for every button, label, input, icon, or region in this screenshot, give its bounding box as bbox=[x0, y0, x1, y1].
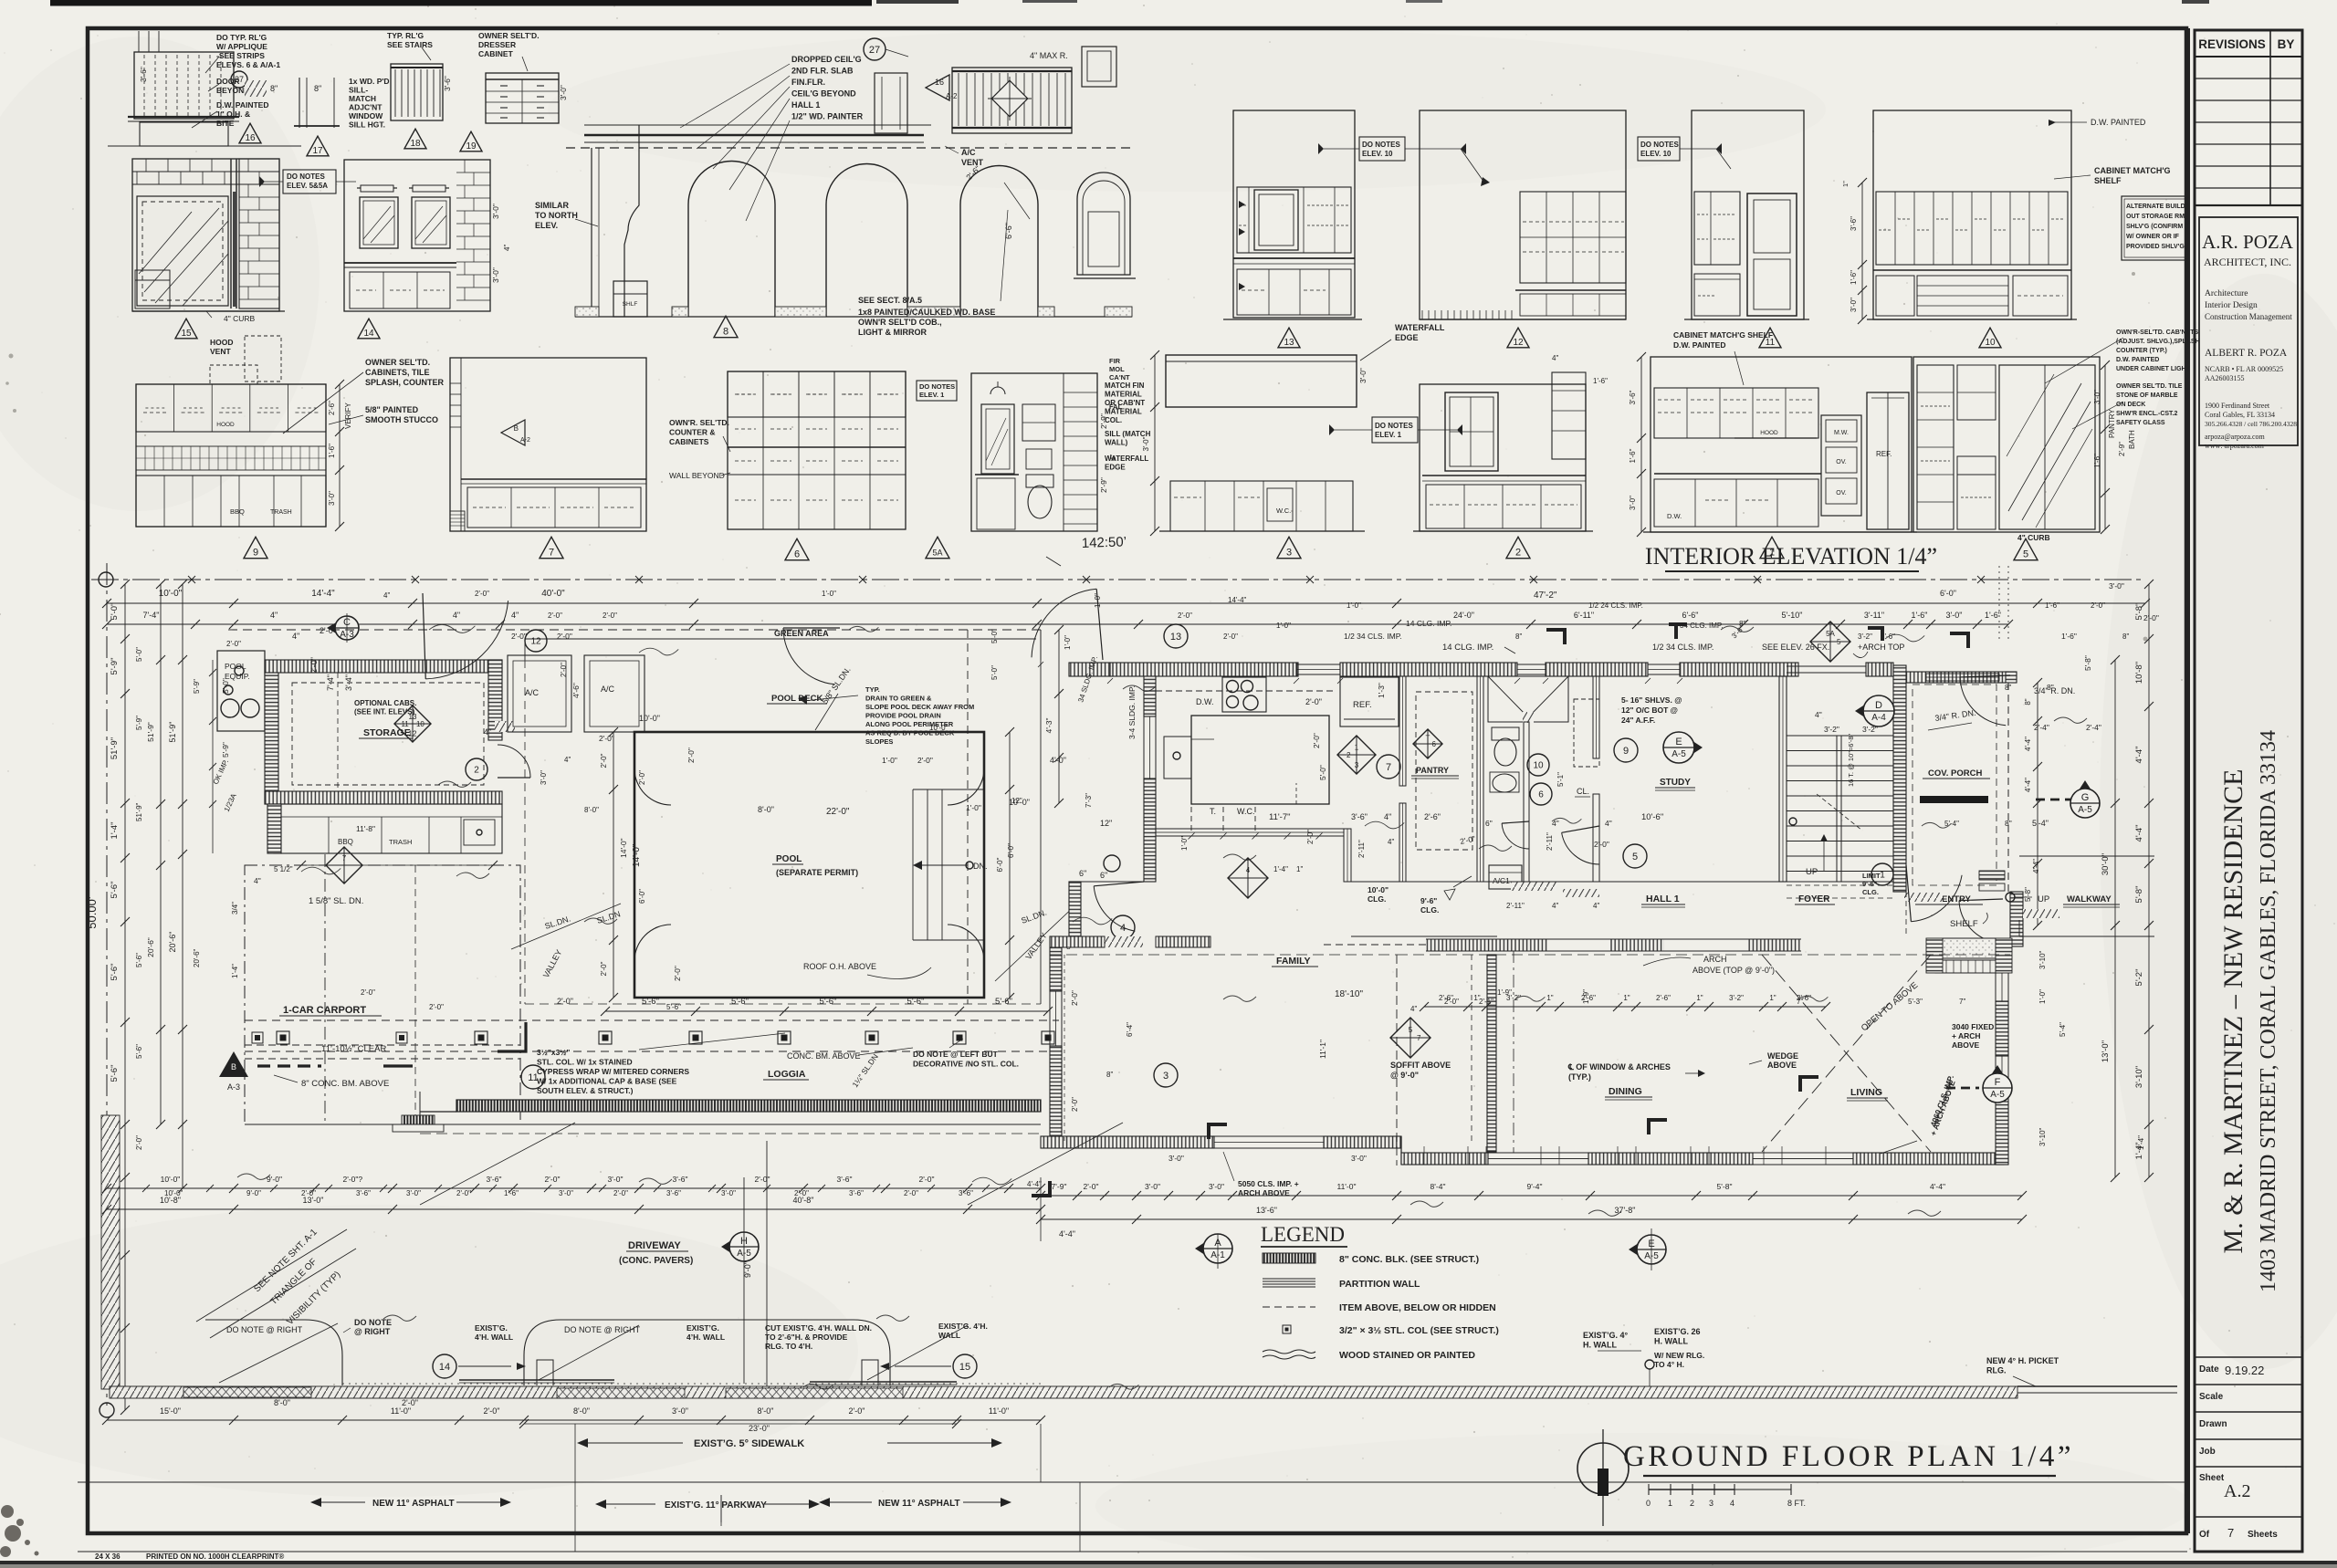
svg-text:2'-0": 2'-0" bbox=[1594, 840, 1609, 849]
svg-text:W/ OWNER OR IF: W/ OWNER OR IF bbox=[2126, 234, 2180, 240]
svg-text:COUNTER (TYP.): COUNTER (TYP.) bbox=[2116, 348, 2167, 354]
svg-text:1": 1" bbox=[1696, 994, 1703, 1002]
svg-text:10: 10 bbox=[1985, 338, 1996, 348]
svg-text:1'-6": 1'-6" bbox=[2045, 601, 2059, 610]
svg-text:SHELF: SHELF bbox=[2094, 176, 2122, 185]
svg-text:A-5: A-5 bbox=[1990, 1090, 2005, 1100]
svg-text:2'-0": 2'-0" bbox=[1178, 612, 1192, 620]
svg-text:2'-9": 2'-9" bbox=[1099, 477, 1108, 493]
svg-text:Job: Job bbox=[2199, 1447, 2216, 1457]
svg-text:5'-6": 5'-6" bbox=[110, 882, 120, 899]
svg-text:5'-6": 5'-6" bbox=[642, 997, 659, 1007]
svg-text:3'-2": 3'-2" bbox=[1824, 725, 1839, 734]
svg-text:MATERIAL: MATERIAL bbox=[1105, 391, 1142, 399]
svg-text:3-4 SLDG. IMP.: 3-4 SLDG. IMP. bbox=[1127, 685, 1137, 739]
svg-text:TRASH: TRASH bbox=[270, 509, 292, 516]
svg-text:1'-0": 1'-0" bbox=[1064, 635, 1072, 650]
svg-text:2'-0": 2'-0" bbox=[545, 1175, 561, 1184]
svg-text:3: 3 bbox=[1286, 548, 1292, 559]
svg-text:Sheets: Sheets bbox=[2248, 1530, 2278, 1540]
svg-text:INTERIOR ELEVATION 1/4”: INTERIOR ELEVATION 1/4” bbox=[1645, 543, 1937, 570]
svg-text:D.W.: D.W. bbox=[1196, 697, 1214, 706]
svg-text:1/2 34 CLS. IMP.: 1/2 34 CLS. IMP. bbox=[1652, 643, 1713, 652]
svg-text:GREEN AREA: GREEN AREA bbox=[774, 629, 829, 638]
svg-text:3/2" × 3½ STL. COL (SEE STRUCT: 3/2" × 3½ STL. COL (SEE STRUCT.) bbox=[1339, 1325, 1499, 1336]
svg-text:3'-0": 3'-0" bbox=[491, 267, 500, 283]
svg-text:OWN'R. SEL'TD.: OWN'R. SEL'TD. bbox=[669, 418, 729, 427]
svg-text:5'-0": 5'-0" bbox=[110, 603, 120, 621]
svg-text:2'-0": 2'-0" bbox=[1084, 1182, 1099, 1191]
svg-text:FAL: FAL bbox=[1109, 402, 1123, 411]
svg-text:8": 8" bbox=[2005, 819, 2012, 828]
svg-text:6'-4": 6'-4" bbox=[1126, 1022, 1134, 1037]
svg-text:2'-0": 2'-0" bbox=[2091, 601, 2105, 610]
svg-text:OWNER SELT'D.: OWNER SELT'D. bbox=[478, 31, 540, 40]
svg-text:1'-0": 1'-0" bbox=[1180, 836, 1189, 851]
svg-text:EDGE: EDGE bbox=[1105, 464, 1126, 472]
svg-text:OWNER SEL'TD.: OWNER SEL'TD. bbox=[365, 358, 430, 367]
svg-text:Drawn: Drawn bbox=[2199, 1419, 2227, 1429]
svg-text:3'-6": 3'-6" bbox=[487, 1175, 502, 1184]
svg-text:CLG.: CLG. bbox=[1420, 905, 1439, 915]
svg-text:WATERFALL: WATERFALL bbox=[1105, 455, 1148, 463]
svg-text:ALTERNATE BUILD-: ALTERNATE BUILD- bbox=[2126, 204, 2188, 210]
svg-text:3'-6": 3'-6" bbox=[959, 1189, 973, 1197]
svg-text:CABINET: CABINET bbox=[478, 49, 514, 58]
svg-text:A-2: A-2 bbox=[520, 437, 530, 444]
svg-text:20'-6": 20'-6" bbox=[168, 932, 177, 953]
svg-text:5'-4": 5'-4" bbox=[2059, 1022, 2067, 1037]
svg-text:5- 16" SHLVS. @: 5- 16" SHLVS. @ bbox=[1621, 695, 1682, 705]
svg-text:5'-8": 5'-8" bbox=[2083, 655, 2092, 671]
svg-text:9'-0": 9'-0" bbox=[246, 1189, 261, 1197]
svg-text:REF.: REF. bbox=[1876, 450, 1892, 458]
svg-text:8": 8" bbox=[270, 84, 278, 93]
svg-text:8'-0": 8'-0" bbox=[758, 805, 774, 814]
svg-text:4": 4" bbox=[1410, 1005, 1417, 1013]
svg-text:CABINET MATCH'G: CABINET MATCH'G bbox=[2094, 166, 2170, 175]
svg-text:ITEM ABOVE, BELOW OR HIDDEN: ITEM ABOVE, BELOW OR HIDDEN bbox=[1339, 1302, 1496, 1313]
svg-text:1'-6": 1'-6" bbox=[2093, 454, 2101, 468]
svg-text:3'-2": 3'-2" bbox=[1729, 994, 1744, 1002]
svg-text:2'-1": 2'-1" bbox=[1479, 998, 1493, 1006]
svg-text:2'-0": 2'-0" bbox=[1306, 830, 1315, 844]
svg-text:1'-4": 1'-4" bbox=[1273, 865, 1288, 873]
svg-text:4'-6": 4'-6" bbox=[571, 683, 581, 698]
svg-text:UP: UP bbox=[2038, 894, 2049, 904]
svg-text:T.: T. bbox=[1210, 807, 1216, 816]
svg-text:5'-3": 5'-3" bbox=[1908, 998, 1923, 1006]
svg-text:12" O/C BOT @: 12" O/C BOT @ bbox=[1621, 706, 1678, 715]
svg-text:FOYER: FOYER bbox=[1798, 894, 1830, 904]
svg-text:CABINETS, TILE: CABINETS, TILE bbox=[365, 368, 430, 377]
svg-text:NEW 11° ASPHALT: NEW 11° ASPHALT bbox=[878, 1499, 960, 1509]
svg-text:1'-9": 1'-9" bbox=[1497, 988, 1512, 997]
svg-text:EXIST’G. 4’H.: EXIST’G. 4’H. bbox=[938, 1322, 988, 1331]
svg-text:50.00’: 50.00’ bbox=[85, 896, 99, 929]
svg-text:2'-6": 2'-6" bbox=[328, 401, 336, 415]
svg-text:10'-6": 10'-6" bbox=[1641, 812, 1663, 822]
svg-text:12: 12 bbox=[409, 729, 417, 737]
svg-text:A-3: A-3 bbox=[227, 1082, 240, 1092]
svg-text:2'-0": 2'-0" bbox=[511, 632, 527, 641]
svg-text:F: F bbox=[1995, 1077, 2001, 1088]
svg-text:5'-9": 5'-9" bbox=[221, 742, 230, 758]
svg-text:5: 5 bbox=[1837, 638, 1841, 646]
svg-text:LOGGIA: LOGGIA bbox=[768, 1069, 806, 1080]
svg-text:5A: 5A bbox=[1826, 630, 1835, 638]
svg-text:WALL: WALL bbox=[938, 1331, 960, 1340]
svg-text:11: 11 bbox=[528, 1072, 538, 1083]
svg-text:EXIST’G. 4°: EXIST’G. 4° bbox=[1583, 1331, 1629, 1340]
svg-text:3'-0": 3'-0" bbox=[1358, 368, 1368, 383]
svg-text:ABOVE: ABOVE bbox=[1952, 1040, 1980, 1050]
svg-text:22'-0": 22'-0" bbox=[826, 807, 850, 817]
svg-text:2'-11": 2'-11" bbox=[1546, 832, 1554, 851]
svg-text:5'-6": 5'-6" bbox=[820, 997, 837, 1007]
svg-text:8": 8" bbox=[1106, 1071, 1113, 1079]
svg-text:SILL HGT.: SILL HGT. bbox=[349, 120, 385, 130]
svg-text:TO NORTH: TO NORTH bbox=[535, 211, 578, 220]
svg-text:4: 4 bbox=[1246, 866, 1251, 874]
svg-text:7: 7 bbox=[2227, 1526, 2234, 1540]
svg-text:13'-6": 13'-6" bbox=[1256, 1206, 1277, 1215]
svg-text:ABOVE (TOP @ 9’-0"): ABOVE (TOP @ 9’-0") bbox=[1692, 966, 1775, 975]
svg-text:Of: Of bbox=[2199, 1530, 2210, 1540]
svg-text:5'-0": 5'-0" bbox=[990, 665, 999, 680]
svg-text:OV.: OV. bbox=[1836, 459, 1846, 465]
svg-text:3'-6": 3'-6" bbox=[849, 1189, 864, 1197]
svg-text:7'-4": 7'-4" bbox=[143, 611, 160, 620]
svg-text:15: 15 bbox=[959, 1362, 970, 1373]
svg-text:2'-0": 2'-0" bbox=[755, 1175, 770, 1184]
svg-text:14'-0": 14'-0" bbox=[632, 843, 642, 867]
svg-text:1'-4": 1'-4" bbox=[110, 822, 120, 840]
svg-text:4'-4": 4'-4" bbox=[1059, 1229, 1075, 1239]
svg-text:6'-0": 6'-0" bbox=[996, 857, 1004, 872]
svg-text:3'-6": 3'-6" bbox=[666, 1189, 681, 1197]
svg-text:8'-4": 8'-4" bbox=[1430, 1182, 1446, 1191]
svg-text:W/ APPLIQUE: W/ APPLIQUE bbox=[216, 42, 267, 51]
svg-text:DECORATIVE /NO STL. COL.: DECORATIVE /NO STL. COL. bbox=[913, 1060, 1019, 1069]
svg-text:NEW 4° H. PICKET: NEW 4° H. PICKET bbox=[1986, 1356, 2059, 1365]
svg-text:5'-1": 5'-1" bbox=[1556, 772, 1565, 787]
svg-text:1'-9": 1'-9" bbox=[1582, 989, 1590, 1004]
svg-text:MATCH FIN: MATCH FIN bbox=[1105, 382, 1145, 390]
svg-text:A-5: A-5 bbox=[1672, 749, 1686, 759]
svg-text:3'-0": 3'-0" bbox=[1946, 611, 1963, 620]
svg-text:11’-10½" CLEAR: 11’-10½" CLEAR bbox=[321, 1044, 386, 1054]
svg-text:3'-0": 3'-0" bbox=[491, 204, 500, 219]
svg-text:4": 4" bbox=[1815, 710, 1822, 719]
svg-text:SPLASH, COUNTER: SPLASH, COUNTER bbox=[365, 378, 445, 387]
svg-text:4": 4" bbox=[484, 727, 491, 737]
svg-text:REVISIONS: REVISIONS bbox=[2198, 37, 2266, 51]
svg-text:Scale: Scale bbox=[2199, 1392, 2224, 1402]
svg-text:1": 1" bbox=[1769, 994, 1776, 1002]
svg-text:CL.: CL. bbox=[1577, 787, 1589, 796]
svg-text:WALL BEYOND: WALL BEYOND bbox=[669, 471, 725, 480]
svg-text:11'-0": 11'-0" bbox=[1336, 1182, 1356, 1191]
svg-text:2'-0": 2'-0" bbox=[603, 612, 617, 620]
svg-text:SMOOTH STUCCO: SMOOTH STUCCO bbox=[365, 415, 438, 424]
svg-text:1'-0": 1'-0" bbox=[1094, 593, 1102, 608]
svg-text:REF.: REF. bbox=[1353, 700, 1372, 710]
svg-text:7: 7 bbox=[342, 854, 347, 862]
svg-text:8": 8" bbox=[2005, 684, 2011, 692]
svg-text:@ 9’-0": @ 9’-0" bbox=[1390, 1071, 1419, 1080]
svg-text:2'-0": 2'-0" bbox=[301, 1189, 316, 1197]
svg-text:11'-8": 11'-8" bbox=[356, 824, 375, 833]
svg-text:11'-1": 11'-1" bbox=[1318, 1040, 1327, 1059]
svg-text:WOOD STAINED OR PAINTED: WOOD STAINED OR PAINTED bbox=[1339, 1350, 1475, 1361]
svg-text:3'-0": 3'-0" bbox=[1142, 436, 1150, 451]
svg-text:8": 8" bbox=[314, 84, 321, 93]
svg-text:CONC. BM. ABOVE: CONC. BM. ABOVE bbox=[787, 1051, 861, 1061]
svg-text:WINDOW: WINDOW bbox=[349, 111, 383, 120]
svg-text:2: 2 bbox=[474, 766, 479, 776]
svg-text:6: 6 bbox=[794, 549, 800, 560]
svg-text:COL.: COL. bbox=[1105, 416, 1122, 424]
svg-text:POOL DECK: POOL DECK bbox=[771, 694, 823, 704]
svg-text:BBQ: BBQ bbox=[230, 507, 245, 516]
svg-text:COV. PORCH: COV. PORCH bbox=[1928, 768, 1982, 779]
svg-text:6": 6" bbox=[1485, 819, 1493, 828]
svg-text:1'-6": 1'-6" bbox=[504, 1189, 519, 1197]
svg-text:142:50’: 142:50’ bbox=[1082, 534, 1127, 551]
svg-text:2'-6": 2'-6" bbox=[1424, 812, 1441, 821]
svg-text:2'-4": 2'-4" bbox=[2034, 723, 2049, 732]
svg-text:1'-0": 1'-0" bbox=[1347, 601, 1361, 610]
svg-text:TYP.: TYP. bbox=[865, 685, 880, 694]
svg-text:D.W. PAINTED: D.W. PAINTED bbox=[1673, 340, 1725, 350]
svg-text:W.C.: W.C. bbox=[1276, 507, 1291, 515]
svg-text:13: 13 bbox=[1284, 338, 1294, 348]
svg-text:Sheet: Sheet bbox=[2199, 1473, 2225, 1483]
svg-text:10'-0": 10'-0" bbox=[164, 1189, 183, 1197]
svg-text:1'-6": 1'-6" bbox=[2061, 632, 2077, 641]
svg-text:4'-3": 4'-3" bbox=[1044, 718, 1053, 734]
svg-text:2'-0": 2'-0" bbox=[1071, 1097, 1079, 1112]
svg-text:SILL-: SILL- bbox=[349, 86, 368, 95]
svg-text:3040 FIXED: 3040 FIXED bbox=[1952, 1022, 1994, 1031]
svg-text:12: 12 bbox=[1513, 338, 1524, 348]
svg-text:3/4": 3/4" bbox=[231, 902, 239, 915]
svg-text:18: 18 bbox=[410, 139, 421, 149]
svg-text:ELEV.: ELEV. bbox=[535, 221, 558, 230]
svg-text:24'-0": 24'-0" bbox=[1453, 611, 1474, 620]
svg-text:10'-0": 10'-0" bbox=[1368, 885, 1389, 894]
svg-text:FIR: FIR bbox=[1109, 357, 1121, 365]
svg-text:3'-11": 3'-11" bbox=[1864, 611, 1884, 620]
svg-text:3: 3 bbox=[1355, 761, 1359, 769]
svg-text:NEW 11° ASPHALT: NEW 11° ASPHALT bbox=[372, 1499, 455, 1509]
svg-text:6'-0": 6'-0" bbox=[1007, 843, 1015, 858]
svg-text:2'-0": 2'-0" bbox=[135, 1135, 143, 1150]
svg-text:W/ 1x ADDITIONAL CAP & BASE (S: W/ 1x ADDITIONAL CAP & BASE (SEE bbox=[537, 1077, 677, 1086]
svg-text:BBQ: BBQ bbox=[338, 838, 353, 846]
svg-text:3'-10": 3'-10" bbox=[2038, 950, 2047, 969]
svg-text:LIGHT & MIRROR: LIGHT & MIRROR bbox=[858, 328, 927, 337]
svg-text:4'-4": 4'-4" bbox=[1930, 1182, 1945, 1191]
svg-text:3'-0": 3'-0" bbox=[1850, 298, 1858, 312]
svg-text:5'-6": 5'-6" bbox=[731, 997, 749, 1007]
svg-text:+ ARCH: + ARCH bbox=[1952, 1031, 1981, 1040]
svg-text:3'-0": 3'-0" bbox=[1168, 1154, 1184, 1163]
svg-text:4": 4" bbox=[564, 756, 571, 764]
svg-text:DO TYP. RL'G: DO TYP. RL'G bbox=[216, 33, 267, 42]
svg-text:2'-0": 2'-0" bbox=[686, 747, 696, 763]
svg-text:40'-0": 40'-0" bbox=[541, 589, 565, 599]
svg-text:2'-0": 2'-0" bbox=[1312, 733, 1321, 748]
svg-text:A.2: A.2 bbox=[2224, 1481, 2250, 1501]
svg-text:TRASH: TRASH bbox=[389, 838, 412, 846]
svg-text:2'-0": 2'-0" bbox=[919, 1175, 935, 1184]
svg-text:9: 9 bbox=[1623, 746, 1629, 757]
svg-text:2'-0": 2'-0" bbox=[361, 988, 375, 997]
svg-text:10'-0": 10'-0" bbox=[929, 724, 948, 732]
svg-text:2'-0": 2'-0" bbox=[849, 1406, 865, 1416]
svg-text:5050 CLS. IMP. +: 5050 CLS. IMP. + bbox=[1238, 1179, 1299, 1188]
svg-text:4'-4": 4'-4" bbox=[2024, 737, 2032, 751]
svg-text:CA'NT: CA'NT bbox=[1109, 373, 1130, 382]
svg-text:4": 4" bbox=[503, 245, 511, 251]
svg-text:11'-0": 11'-0" bbox=[989, 1406, 1009, 1416]
svg-text:2'-0": 2'-0" bbox=[600, 961, 608, 976]
svg-text:℄ OF WINDOW & ARCHES: ℄ OF WINDOW & ARCHES bbox=[1567, 1062, 1671, 1071]
svg-text:B: B bbox=[514, 424, 519, 433]
svg-text:1 5/8" SL. DN.: 1 5/8" SL. DN. bbox=[309, 896, 363, 906]
svg-text:EXIST’G. 11° PARKWAY: EXIST’G. 11° PARKWAY bbox=[665, 1500, 767, 1511]
svg-text:W.C.: W.C. bbox=[1237, 807, 1255, 816]
svg-text:4": 4" bbox=[1552, 354, 1558, 362]
svg-text:(SEPARATE PERMIT): (SEPARATE PERMIT) bbox=[776, 868, 858, 877]
svg-text:16 T. @ 10"=6'-8": 16 T. @ 10"=6'-8" bbox=[1847, 733, 1855, 787]
svg-text:2'-4": 2'-4" bbox=[2086, 723, 2101, 732]
svg-text:3'-0": 3'-0" bbox=[721, 1189, 736, 1197]
svg-text:3'-0": 3'-0" bbox=[1209, 1182, 1224, 1191]
svg-text:H. WALL: H. WALL bbox=[1583, 1341, 1617, 1350]
svg-text:DRAIN TO GREEN &: DRAIN TO GREEN & bbox=[865, 695, 932, 703]
svg-text:T: T bbox=[1426, 735, 1430, 743]
svg-text:1": 1" bbox=[1296, 865, 1303, 873]
svg-text:5'-6": 5'-6" bbox=[135, 1044, 143, 1059]
svg-text:1: 1 bbox=[1880, 871, 1885, 881]
svg-text:WALL): WALL) bbox=[1105, 439, 1128, 447]
svg-text:D: D bbox=[1875, 700, 1882, 711]
svg-text:WATERFALL: WATERFALL bbox=[1395, 323, 1445, 332]
svg-text:DO NOTES: DO NOTES bbox=[1375, 422, 1413, 430]
svg-text:5'-8": 5'-8" bbox=[2024, 887, 2032, 902]
svg-text:D.W. PAINTED: D.W. PAINTED bbox=[2091, 118, 2146, 127]
svg-text:OWN'R SELT'D COB.,: OWN'R SELT'D COB., bbox=[858, 318, 942, 327]
svg-text:HOOD: HOOD bbox=[1760, 430, 1778, 436]
svg-text:3/4" R. DN.: 3/4" R. DN. bbox=[2034, 686, 2075, 695]
svg-text:SHLV'G (CONFIRM: SHLV'G (CONFIRM bbox=[2126, 224, 2183, 230]
svg-text:1'-4": 1'-4" bbox=[231, 964, 239, 978]
svg-text:10: 10 bbox=[416, 720, 424, 728]
svg-text:8'-0": 8'-0" bbox=[584, 806, 599, 814]
svg-text:TYP. RL'G: TYP. RL'G bbox=[387, 31, 424, 40]
svg-text:+ARCH TOP: +ARCH TOP bbox=[1858, 643, 1904, 652]
svg-text:4": 4" bbox=[1552, 902, 1558, 910]
svg-text:3'-2": 3'-2" bbox=[1858, 632, 1872, 641]
svg-text:SOUTH ELEV. & STRUCT.): SOUTH ELEV. & STRUCT.) bbox=[537, 1086, 634, 1095]
svg-text:5'-0": 5'-0" bbox=[1318, 765, 1327, 780]
svg-text:2'-0": 2'-0" bbox=[904, 1189, 918, 1197]
svg-text:SLOPE POOL DECK AWAY FROM: SLOPE POOL DECK AWAY FROM bbox=[865, 703, 974, 711]
svg-text:6'-11": 6'-11" bbox=[1574, 611, 1594, 620]
svg-text:5'-6": 5'-6" bbox=[135, 953, 143, 967]
svg-text:PROVIDED SHLV'G.): PROVIDED SHLV'G.) bbox=[2126, 244, 2188, 250]
svg-text:OWN'R-SEL'TD. CAB'NETS: OWN'R-SEL'TD. CAB'NETS bbox=[2116, 329, 2198, 336]
svg-text:9: 9 bbox=[253, 548, 258, 559]
svg-text:5'-6": 5'-6" bbox=[666, 1003, 681, 1011]
svg-text:2'-0": 2'-0" bbox=[917, 756, 933, 765]
svg-text:1'-0": 1'-0" bbox=[882, 756, 897, 765]
svg-text:ELEV. 1: ELEV. 1 bbox=[919, 391, 944, 399]
svg-text:LIVING: LIVING bbox=[1850, 1087, 1882, 1098]
svg-text:9'-6": 9'-6" bbox=[1420, 896, 1437, 905]
svg-text:2'-0": 2'-0" bbox=[599, 734, 614, 743]
svg-text:3'-0": 3'-0" bbox=[2093, 390, 2101, 404]
svg-text:5'-0": 5'-0" bbox=[221, 678, 230, 694]
svg-text:5: 5 bbox=[1409, 1026, 1413, 1034]
svg-text:4": 4" bbox=[292, 632, 299, 641]
svg-text:37'-8": 37'-8" bbox=[1615, 1206, 1636, 1215]
svg-text:2'-0": 2'-0" bbox=[309, 657, 319, 674]
svg-text:1x8 PAINTED/CAULKED WD. BASE: 1x8 PAINTED/CAULKED WD. BASE bbox=[858, 308, 995, 317]
svg-text:4'-4": 4'-4" bbox=[2032, 859, 2040, 873]
svg-text:3'-0": 3'-0" bbox=[406, 1189, 421, 1197]
svg-text:4'-4": 4'-4" bbox=[1027, 1180, 1042, 1188]
svg-text:1'-0": 1'-0" bbox=[1276, 622, 1291, 630]
svg-text:-SEE STRIPS: -SEE STRIPS bbox=[216, 51, 265, 60]
svg-text:2'-0": 2'-0" bbox=[560, 663, 568, 677]
svg-text:SHLF: SHLF bbox=[623, 301, 638, 308]
svg-text:3'-10": 3'-10" bbox=[2038, 1127, 2047, 1146]
svg-text:BATH: BATH bbox=[2128, 430, 2136, 449]
svg-text:3'-0": 3'-0" bbox=[1145, 1182, 1160, 1191]
svg-text:DO NOTES: DO NOTES bbox=[919, 382, 955, 391]
svg-text:10: 10 bbox=[1533, 761, 1544, 771]
svg-text:9'-6": 9'-6" bbox=[1862, 880, 1878, 888]
svg-text:14'-4": 14'-4" bbox=[311, 589, 335, 599]
svg-text:2'-0": 2'-0" bbox=[1070, 990, 1079, 1006]
svg-text:EDGE: EDGE bbox=[1395, 333, 1419, 342]
svg-text:4": 4" bbox=[383, 591, 390, 600]
svg-text:1/2 34 CLS. IMP.: 1/2 34 CLS. IMP. bbox=[1344, 632, 1402, 641]
svg-text:5'-6": 5'-6" bbox=[110, 1065, 120, 1082]
svg-text:POOL: POOL bbox=[776, 854, 802, 864]
svg-text:STUDY: STUDY bbox=[1660, 778, 1691, 788]
svg-text:STL. COL. W/ 1x STAINED: STL. COL. W/ 1x STAINED bbox=[537, 1058, 633, 1067]
svg-text:E: E bbox=[1675, 737, 1682, 747]
svg-text:4'-0": 4'-0" bbox=[1050, 756, 1066, 765]
svg-text:PARTITION WALL: PARTITION WALL bbox=[1339, 1279, 1420, 1290]
svg-text:34 CLG. IMP.: 34 CLG. IMP. bbox=[1680, 622, 1723, 630]
svg-text:4": 4" bbox=[1388, 838, 1394, 846]
svg-text:8": 8" bbox=[1515, 632, 1522, 641]
svg-text:2'-0": 2'-0" bbox=[1223, 632, 1238, 641]
svg-text:ARCH: ARCH bbox=[1703, 955, 1727, 964]
svg-text:5'-0": 5'-0" bbox=[135, 647, 143, 662]
svg-text:3'-4": 3'-4" bbox=[344, 674, 353, 691]
svg-text:14'-4": 14'-4" bbox=[1228, 596, 1247, 604]
svg-text:51'-9": 51'-9" bbox=[110, 737, 120, 759]
svg-text:ARCHITECT, INC.: ARCHITECT, INC. bbox=[2204, 256, 2291, 268]
svg-text:3'-0": 3'-0" bbox=[559, 1189, 573, 1197]
